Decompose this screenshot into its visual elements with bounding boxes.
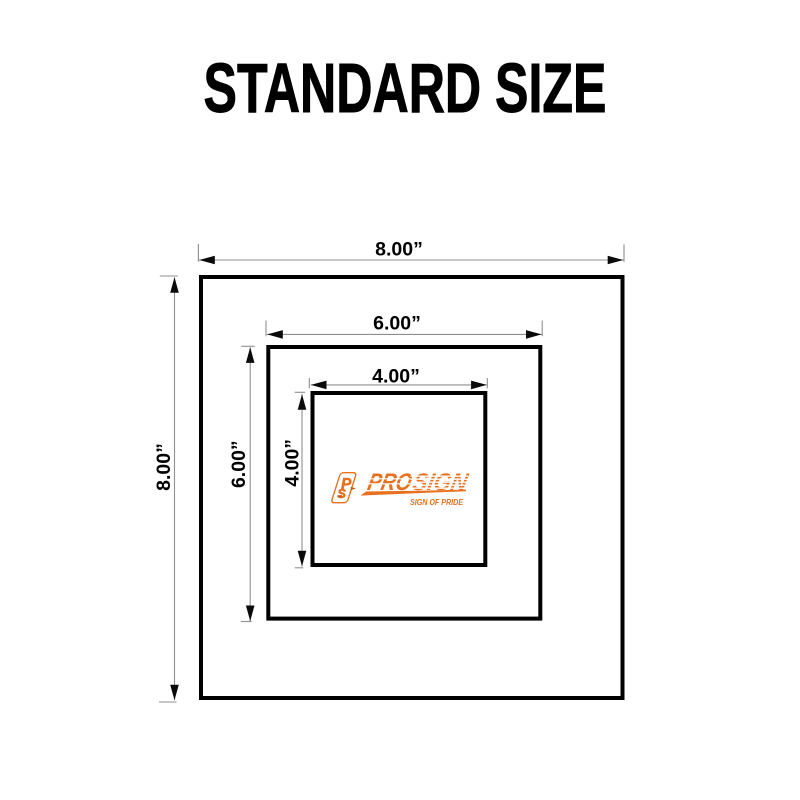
svg-text:8.00”: 8.00” (153, 443, 175, 491)
svg-text:4.00”: 4.00” (282, 439, 304, 487)
svg-text:6.00”: 6.00” (228, 440, 250, 488)
svg-text:STANDARD SIZE: STANDARD SIZE (204, 49, 607, 127)
svg-text:4.00”: 4.00” (372, 366, 420, 388)
svg-text:8.00”: 8.00” (375, 239, 423, 261)
svg-text:6.00”: 6.00” (373, 312, 421, 334)
svg-text:S: S (337, 486, 346, 501)
svg-text:SIGN OF PRIDE: SIGN OF PRIDE (410, 498, 463, 507)
